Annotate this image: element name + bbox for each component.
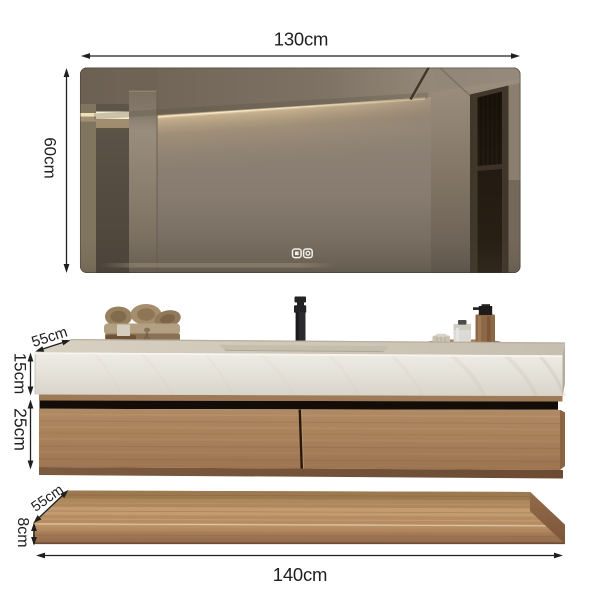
svg-text:140cm: 140cm — [273, 564, 328, 585]
svg-text:8cm: 8cm — [14, 517, 31, 547]
svg-text:130cm: 130cm — [274, 29, 329, 50]
svg-text:25cm: 25cm — [11, 408, 31, 451]
svg-text:60cm: 60cm — [41, 137, 60, 179]
svg-text:15cm: 15cm — [11, 353, 30, 395]
